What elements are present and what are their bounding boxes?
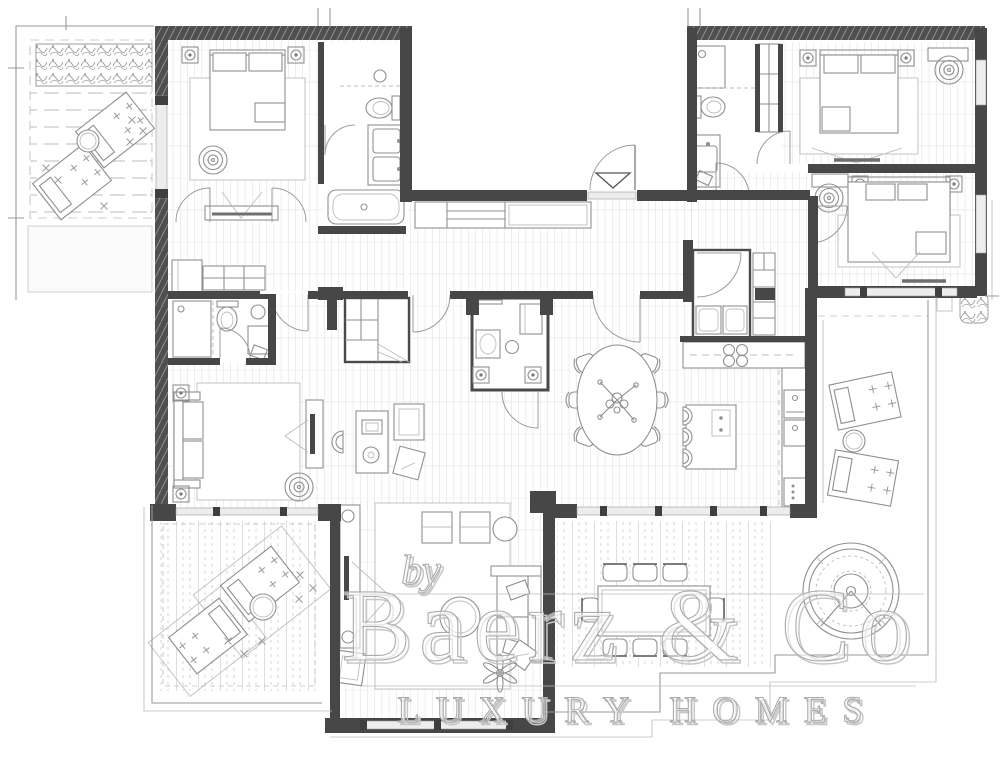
pouf-icon	[422, 512, 452, 543]
planter-icon	[36, 44, 152, 86]
side-table-icon	[250, 594, 276, 620]
bathtub-icon	[328, 190, 404, 224]
floor-plan-page: by by Baerz & Co Baerz & Co LUXURY HOMES…	[0, 0, 1000, 764]
entrance-arrow-icon	[596, 173, 630, 188]
toilet-icon	[476, 330, 500, 358]
watermark: by by Baerz & Co Baerz & Co LUXURY HOMES…	[342, 548, 924, 734]
console-icon	[928, 48, 968, 61]
double-bed-icon	[820, 50, 898, 133]
bench-icon	[172, 260, 202, 292]
kitchen-island	[683, 405, 736, 469]
floor-plan: by by Baerz & Co Baerz & Co LUXURY HOMES…	[0, 0, 1000, 764]
dresser-icon	[812, 174, 848, 187]
round-pouf-icon	[493, 517, 517, 541]
laundry-room	[693, 250, 750, 338]
tv-icon	[310, 414, 315, 454]
kitchen-counter	[683, 342, 805, 368]
double-bed-icon	[210, 50, 285, 130]
lounge-chair-icon	[829, 372, 901, 430]
double-bed-icon	[848, 177, 950, 262]
linen-closet	[758, 44, 780, 132]
cabinet-icon	[520, 304, 542, 334]
terrace-lower-pad	[28, 226, 152, 292]
entry-closet-icon	[415, 202, 591, 228]
toilet-icon	[694, 96, 725, 118]
planter-icon	[937, 296, 952, 311]
rug	[197, 383, 300, 500]
closet-icon	[345, 298, 409, 362]
pouf-icon	[460, 512, 490, 543]
watermark-brand: Baerz & Co	[342, 568, 919, 683]
dining-area	[566, 345, 668, 455]
lounge-chair-icon	[827, 450, 898, 506]
watermark-tagline: LUXURY HOMES	[397, 690, 879, 731]
kitchen-tall-units	[782, 368, 808, 510]
